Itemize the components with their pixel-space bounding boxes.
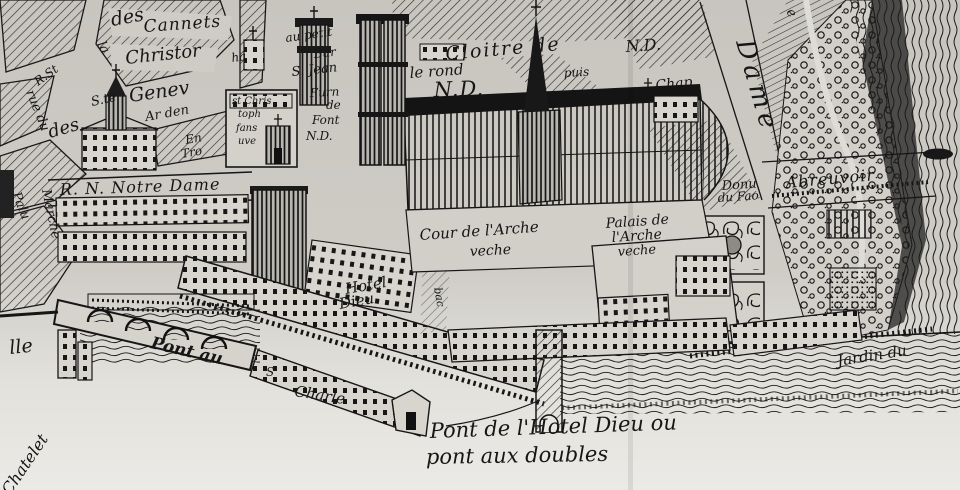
label-st-christophe-4: uve [238,136,256,147]
building-row [58,232,246,262]
chapel-door [406,412,416,430]
map-image: la des Cannets Christor R.St ha S.te Gen… [0,0,960,490]
label-fragment-ha: ha [230,49,247,65]
label-nd-big: N.D. [432,76,484,102]
caption-pont-hotel-dieu-2: pont aux doubles [426,442,609,469]
label-st-christophe-1: st Chris [232,96,272,107]
label-fragment-lle: lle [8,335,34,359]
west-tower-south [384,20,405,165]
label-nd-font: N.D. [305,129,333,143]
west-tower-north [360,20,381,165]
label-du-fao: du Fao [717,188,759,205]
palais-building [676,256,730,296]
label-st-christophe-2: toph [238,109,261,120]
garden-plot-striped [827,210,871,238]
label-font: Font [311,113,340,127]
garden-plot-dotted [830,268,876,310]
engraved-map-svg: la des Cannets Christor R.St ha S.te Gen… [0,0,960,490]
label-s: S [266,365,274,379]
label-cour-archeveche-2: veche [469,242,511,260]
label-palais-3: veche [617,242,657,260]
label-puis: puis [563,65,589,80]
boat [923,149,953,160]
label-bur: Bur [312,45,338,61]
label-nd-cloitre: N.D. [624,35,662,56]
building-row [56,195,248,226]
transept [518,110,562,204]
label-st-christophe-3: fans [235,123,257,134]
label-de: de [326,98,341,112]
